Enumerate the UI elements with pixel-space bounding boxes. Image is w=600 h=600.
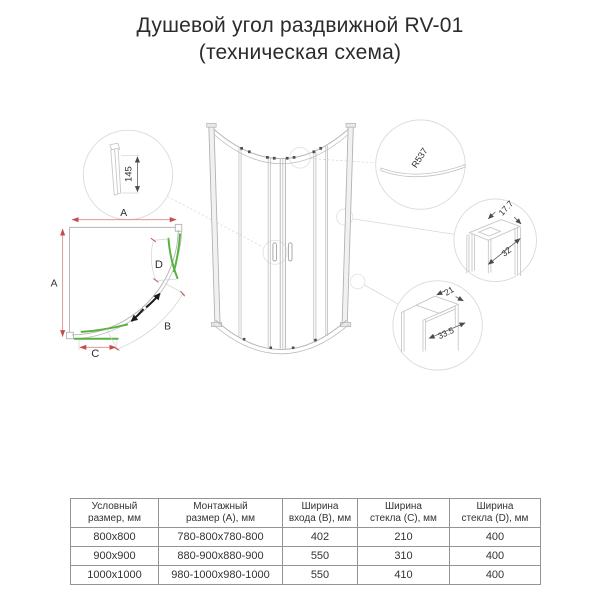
left-post-cap — [207, 123, 216, 127]
table-cell: 410 — [358, 566, 450, 585]
page-title: Душевой угол раздвижной RV-01 (техническ… — [0, 13, 600, 67]
table-cell: 310 — [358, 547, 450, 566]
col-header-glass-d-width: Ширина стекла (D), мм — [450, 499, 541, 528]
table-cell: 550 — [283, 547, 358, 566]
bottom-rail — [216, 320, 347, 349]
page-title-line1: Душевой угол раздвижной RV-01 — [0, 13, 600, 40]
table-cell: 800х800 — [71, 528, 159, 547]
top-rail — [214, 129, 348, 158]
col-header-glass-c-width: Ширина стекла (С), мм — [358, 499, 450, 528]
col-header-nominal-size: Условный размер, мм — [71, 499, 159, 528]
technical-diagram: 145 A A C — [0, 70, 600, 500]
wall-profile-highlight-circle — [350, 274, 365, 289]
dim-c-label: C — [91, 348, 99, 360]
dim-145-label: 145 — [123, 166, 134, 182]
table-row: 800х800 780-800х780-800 402 210 400 — [71, 528, 541, 547]
table-cell: 780-800х780-800 — [159, 528, 283, 547]
size-table: Условный размер, мм Монтажный размер (А)… — [70, 498, 541, 585]
table-cell: 400 — [450, 528, 541, 547]
slide-arrow-up — [146, 294, 160, 308]
roller-brackets — [240, 147, 322, 349]
table-cell: 400 — [450, 547, 541, 566]
left-door-handle — [273, 243, 277, 261]
table-cell: 980-1000х980-1000 — [159, 566, 283, 585]
dim-a-top-label: A — [120, 208, 127, 219]
technical-scheme-page: Душевой угол раздвижной RV-01 (техническ… — [0, 0, 600, 600]
detail-curved-rail-r537: R537 — [376, 120, 465, 209]
plan-view: A A C D B — [51, 208, 186, 360]
right-post-cap — [346, 123, 355, 127]
table-cell: 550 — [283, 566, 358, 585]
right-door-handle — [288, 243, 292, 261]
plan-sliding-door-bottom — [82, 325, 128, 332]
table-row: 900х900 880-900х880-900 550 310 400 — [71, 547, 541, 566]
table-cell: 900х900 — [71, 547, 159, 566]
plan-track-arc-inner — [72, 230, 178, 335]
table-cell: 1000х1000 — [71, 566, 159, 585]
detail-wall-profile-145: 145 — [83, 130, 172, 219]
table-cell: 210 — [358, 528, 450, 547]
table-row: 1000х1000 980-1000х980-1000 550 410 400 — [71, 566, 541, 585]
dim-a-left-label: A — [51, 279, 58, 290]
dim-b-label: B — [164, 322, 171, 333]
detail-wall-channel-profile: 21 33.5 — [393, 281, 482, 370]
dim-d-label: D — [155, 259, 163, 271]
table-header-row: Условный размер, мм Монтажный размер (А)… — [71, 499, 541, 528]
page-title-line2: (техническая схема) — [0, 40, 600, 67]
front-view — [207, 123, 356, 353]
col-header-mounting-size: Монтажный размер (А), мм — [159, 499, 283, 528]
plan-corner-profile-bottom — [67, 332, 74, 338]
col-header-entrance-width: Ширина входа (В), мм — [283, 499, 358, 528]
glass-panel-edges — [239, 146, 328, 349]
detail-roller-profile: 17.7 32 — [454, 198, 537, 281]
table-cell: 880-900х880-900 — [159, 547, 283, 566]
top-rail-inner — [214, 135, 348, 164]
table-cell: 400 — [450, 566, 541, 585]
table-cell: 402 — [283, 528, 358, 547]
left-post — [209, 127, 220, 323]
